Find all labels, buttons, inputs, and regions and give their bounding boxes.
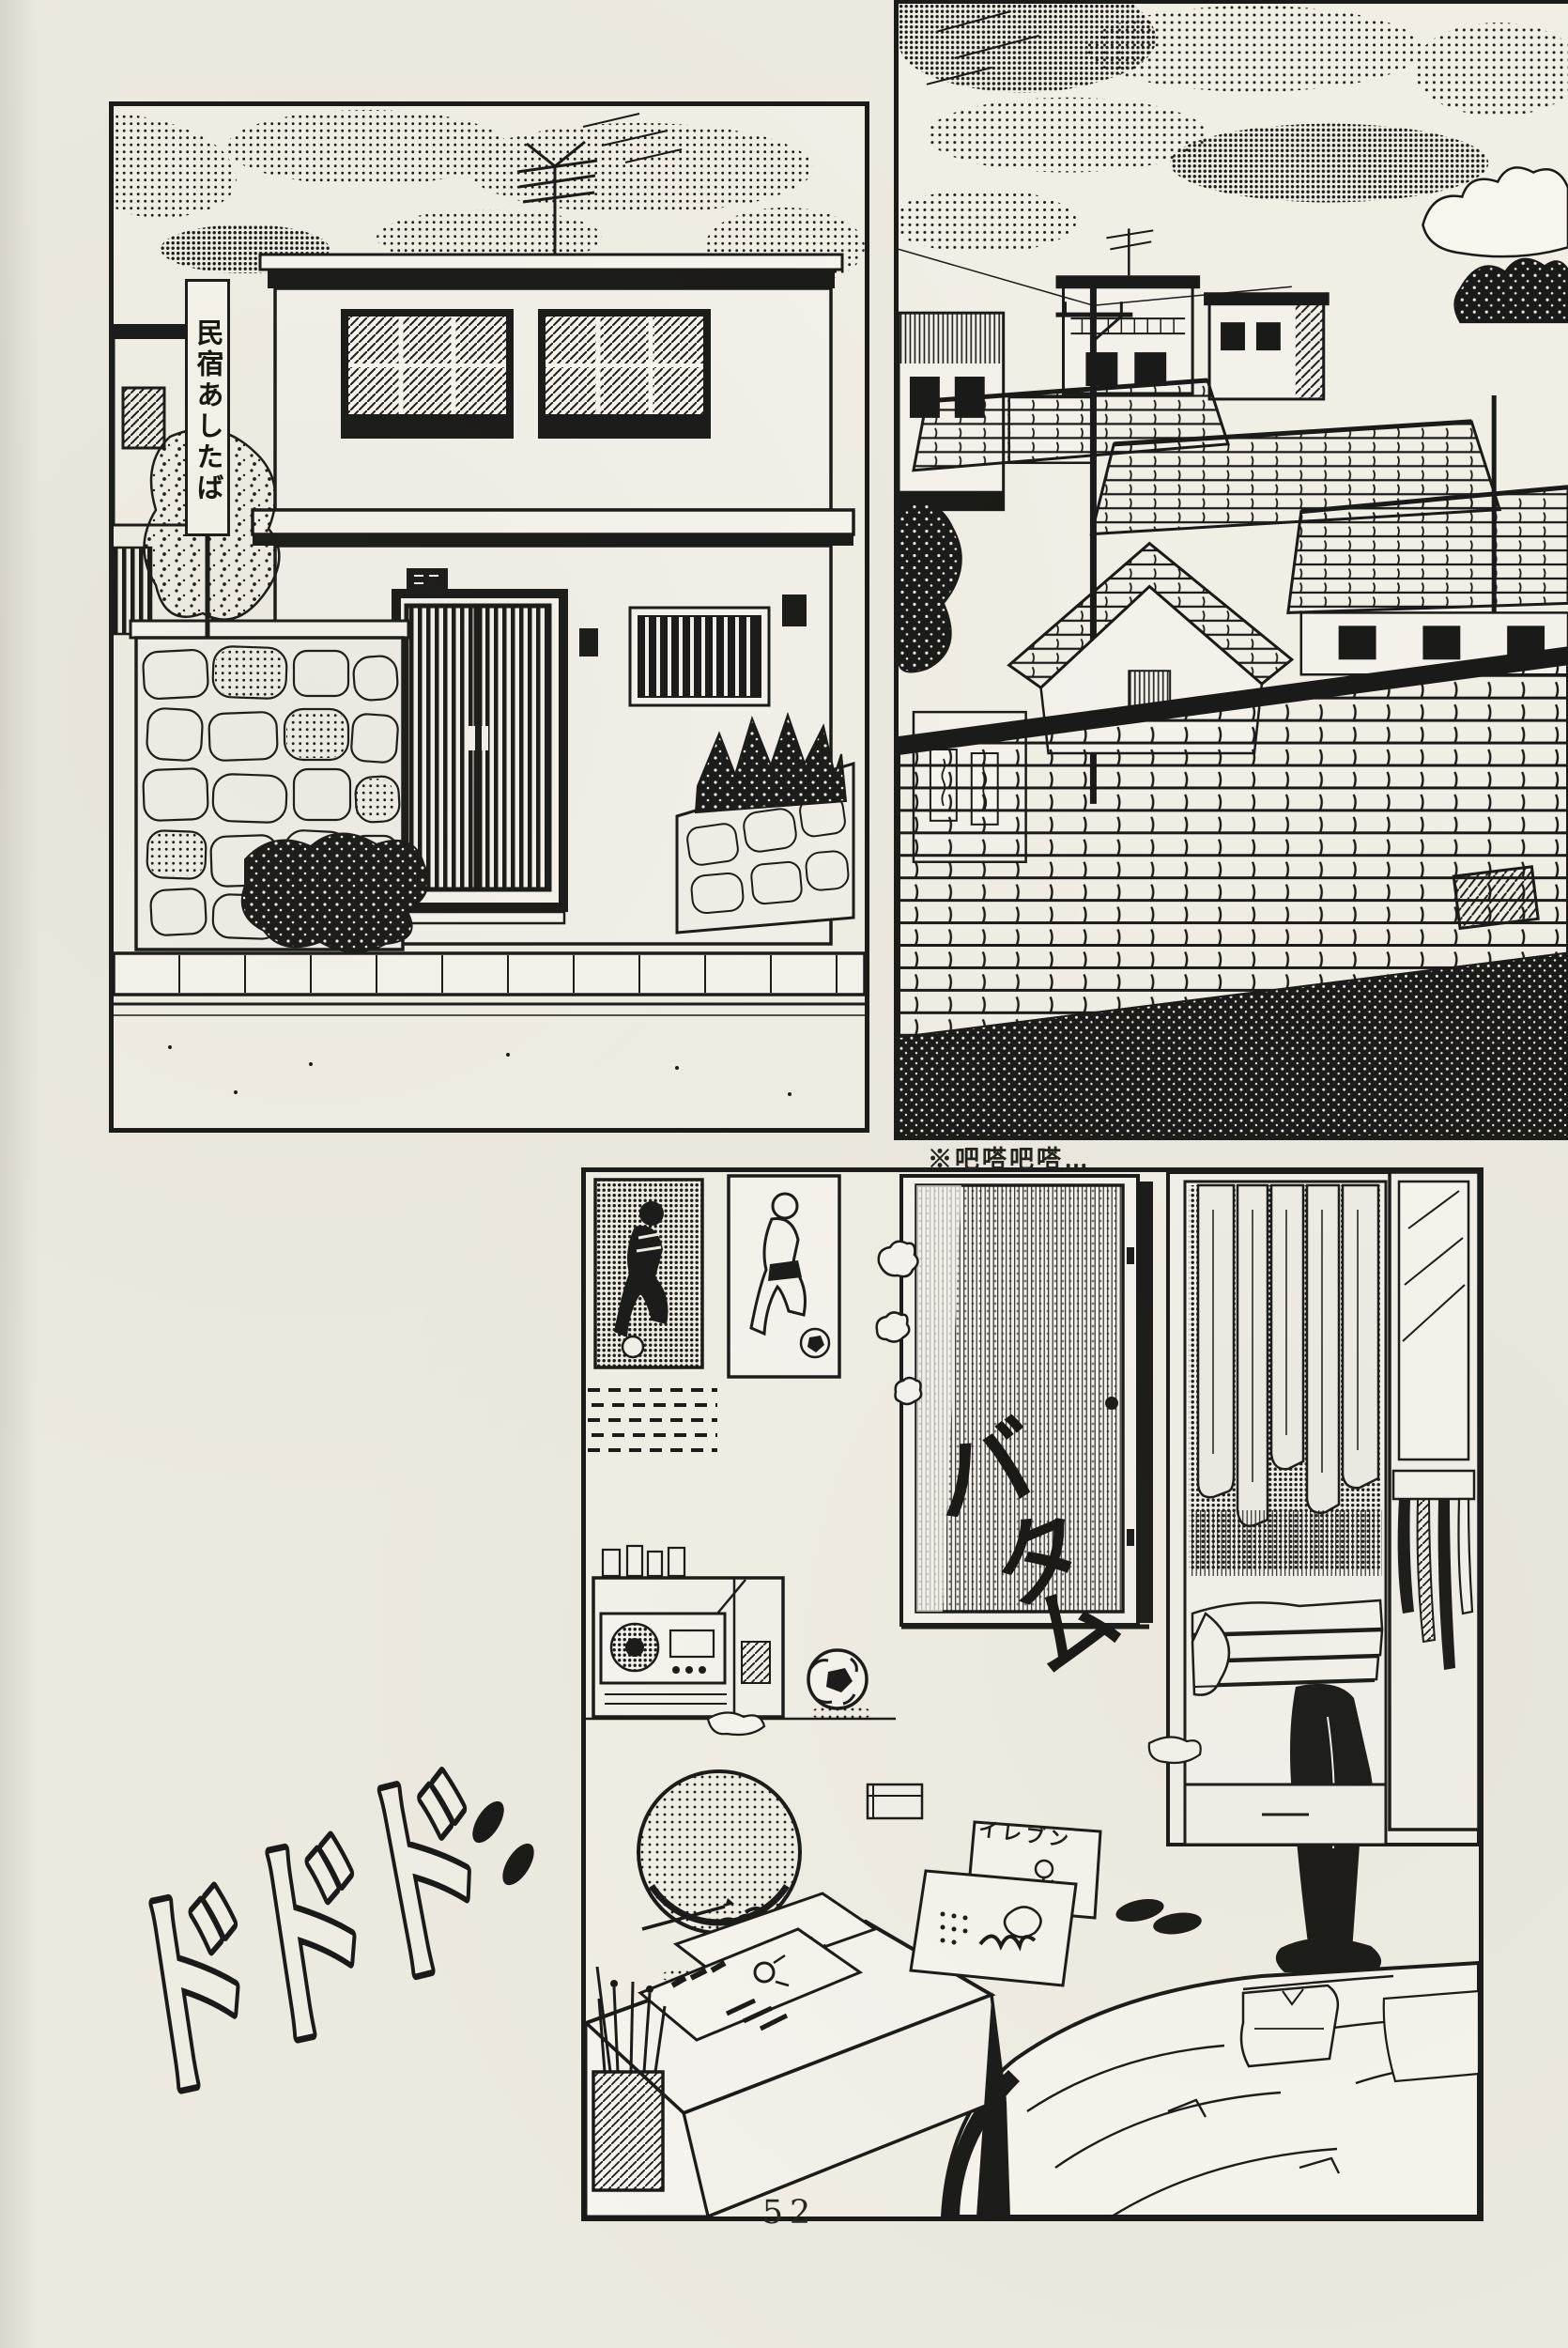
inn-artwork: [114, 106, 865, 1128]
shelf-boombox: [593, 1546, 783, 1717]
manga-page: 民宿あしたば: [0, 0, 1568, 2348]
dusk-sky: [899, 4, 1568, 322]
floor-cloth: [708, 1712, 764, 1735]
inn-signboard: 民宿あしたば: [185, 279, 230, 536]
rooftops-artwork: [899, 4, 1568, 1135]
page-number: 52: [738, 2194, 841, 2232]
wardrobe: [1168, 1172, 1479, 1972]
mirror: [1399, 1182, 1468, 1460]
floor-book: [868, 1784, 922, 1818]
shirt-on-bed: [1241, 1985, 1338, 2066]
folded-clothes: [1192, 1600, 1382, 1695]
street: [114, 953, 865, 1096]
clothes-pile: [1276, 1938, 1381, 1972]
tree-row: [1454, 259, 1568, 323]
bedroom-artwork: [586, 1172, 1479, 2217]
foliage: [899, 503, 961, 672]
sfx-rumble: ド ド ド: [127, 1733, 601, 2174]
wall-vent: [588, 1390, 717, 1450]
panel-bedroom: バ タ ム イレブン: [581, 1167, 1483, 2221]
gate-bush: [242, 833, 428, 951]
translator-note: ※吧嗒吧嗒…: [928, 1140, 1091, 1175]
panel-town-rooftops: [894, 0, 1568, 1140]
soccer-posters: [588, 1176, 839, 1450]
panel-inn-exterior: 民宿あしたば: [109, 101, 869, 1133]
soccer-ball: [808, 1650, 873, 1721]
